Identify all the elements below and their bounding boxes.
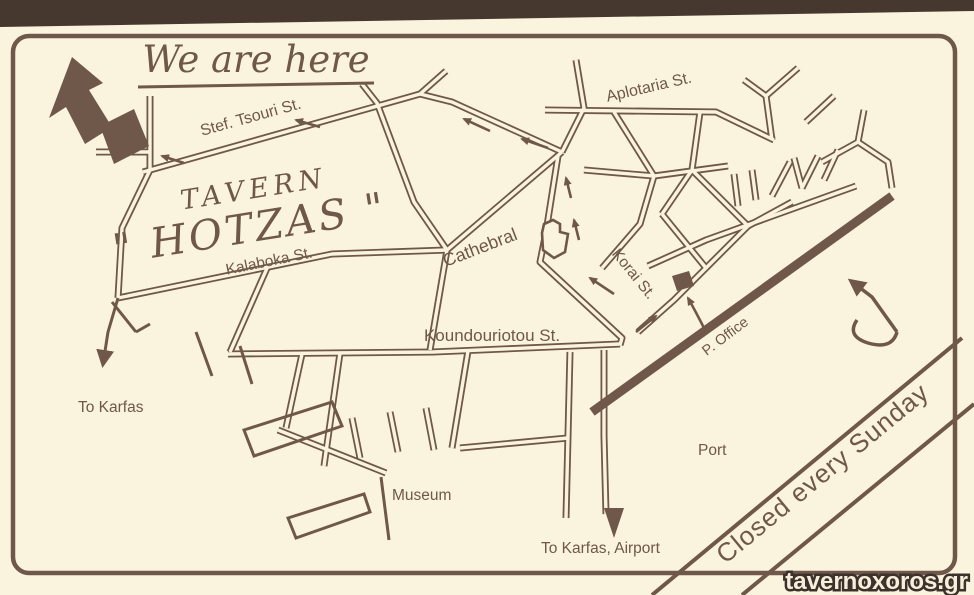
direction-label-to-karfas-airport: To Karfas, Airport bbox=[541, 540, 661, 557]
map-card: We are here Stef. Tsouri St. Aplotaria S… bbox=[0, 0, 974, 595]
map-background bbox=[0, 0, 974, 595]
place-label-port: Port bbox=[698, 442, 727, 459]
place-label-museum: Museum bbox=[392, 487, 451, 504]
we-are-here-title: We are here bbox=[142, 38, 369, 81]
direction-label-to-karfas: To Karfas bbox=[78, 399, 144, 416]
taverna-map-svg: We are here Stef. Tsouri St. Aplotaria S… bbox=[0, 0, 974, 595]
street-label-koundouriotou: Koundouriotou St. bbox=[424, 326, 560, 345]
watermark-text: tavernoxoros.gr bbox=[785, 568, 968, 595]
